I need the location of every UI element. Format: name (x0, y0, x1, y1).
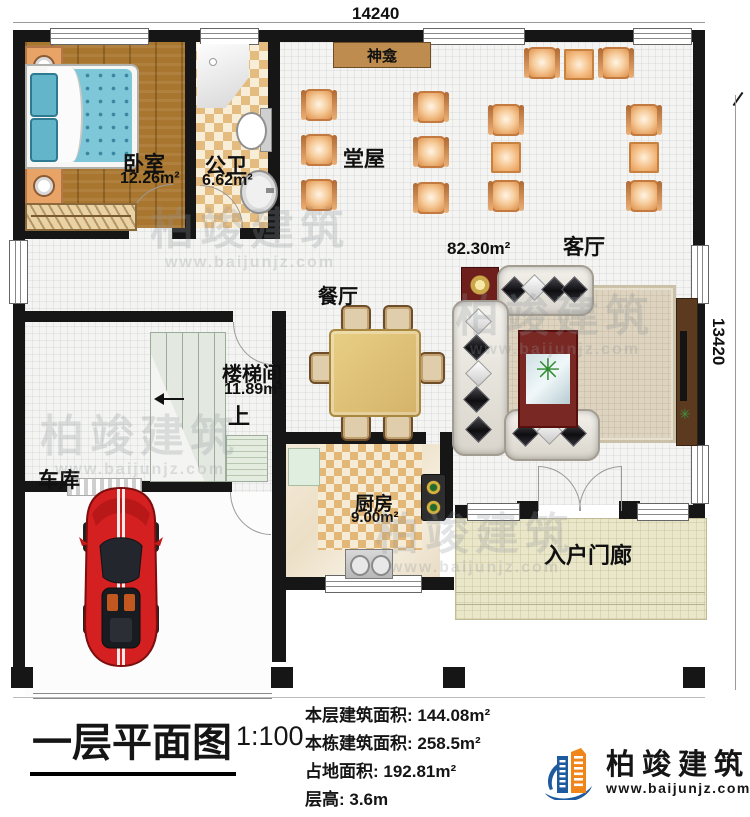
scale-label: 1:100 (236, 721, 304, 752)
wall (13, 311, 233, 322)
cushion (465, 416, 492, 443)
cushion (463, 386, 490, 413)
living-area: 82.30m² (447, 239, 510, 259)
pillar (683, 667, 705, 688)
side-table (461, 267, 499, 303)
window (423, 28, 525, 45)
basin-icon (350, 555, 370, 576)
basin-icon (371, 555, 391, 576)
sofa-top (497, 265, 594, 316)
dimension-line-right (735, 95, 736, 690)
wall (13, 492, 25, 688)
hall-chair (629, 104, 659, 136)
dining-table (329, 329, 421, 417)
arrow-head-icon (148, 393, 164, 405)
coffee-table: ✳ (518, 330, 578, 428)
window (691, 445, 709, 504)
wall (240, 228, 280, 239)
staircase (150, 332, 226, 482)
window (633, 28, 692, 45)
tv-cabinet: ✳ (676, 298, 698, 446)
dimension-right: 13420 (708, 318, 728, 365)
hall-chair (304, 89, 334, 121)
page-title: 一层平面图 (30, 710, 236, 776)
wall (172, 228, 185, 239)
hall-chair (304, 134, 334, 166)
hall-chair (416, 136, 446, 168)
pillar (271, 667, 293, 688)
logo-text-block: 柏竣建筑 www.baijunjz.com (606, 750, 750, 796)
hall-tea-table (491, 142, 521, 173)
cushion (561, 276, 588, 303)
porch-step-line (455, 592, 705, 593)
window (200, 28, 259, 45)
dining-chair (383, 413, 413, 441)
faucet-icon (266, 188, 274, 193)
hall-chair (491, 180, 521, 212)
hall-tea-table (629, 142, 659, 173)
hall-chair (527, 47, 557, 79)
bed (25, 64, 139, 169)
stat-floor-height: 层高: 3.6m (305, 786, 490, 814)
wall (272, 492, 286, 662)
cushion (465, 360, 492, 387)
wall (185, 42, 196, 239)
cushion (463, 334, 490, 361)
garage-door (33, 693, 272, 699)
pillar (11, 667, 33, 688)
hall-chair (416, 182, 446, 214)
stair-direction-arrow (158, 398, 184, 400)
stairwell-area: 11.89m² (224, 381, 283, 399)
stove (421, 474, 446, 521)
stair-landing (226, 435, 268, 482)
window (691, 245, 709, 304)
car (78, 484, 164, 670)
toilet (236, 112, 267, 150)
wall (13, 302, 25, 492)
lamp-icon (33, 175, 55, 197)
dimension-line-top (13, 22, 705, 23)
stat-floor-area: 本层建筑面积: 144.08m² (305, 702, 490, 730)
hall-chair (629, 180, 659, 212)
garage-label: 车库 (38, 464, 80, 494)
cushion (465, 308, 492, 335)
porch-step-line (455, 604, 705, 605)
pillar (517, 501, 538, 519)
pillar (443, 667, 465, 688)
stat-footprint-area: 占地面积: 192.81m² (305, 758, 490, 786)
porch-label: 入户门廊 (544, 538, 632, 570)
stairwell-up-label: 上 (228, 399, 250, 431)
stat-building-area: 本栋建筑面积: 258.5m² (305, 730, 490, 758)
nightstand (25, 166, 63, 206)
kitchen-counter (288, 448, 320, 486)
kitchen-area: 9.00m² (351, 509, 399, 526)
wall (693, 30, 705, 245)
logo-website: www.baijunjz.com (606, 780, 750, 796)
hall-chair (491, 104, 521, 136)
stats-block: 本层建筑面积: 144.08m² 本栋建筑面积: 258.5m² 占地面积: 1… (305, 702, 490, 814)
bathroom-area: 6.62m² (202, 172, 253, 190)
dining-chair (419, 352, 445, 384)
kitchen-sink (345, 549, 393, 579)
plant-icon: ✳ (528, 356, 568, 386)
logo-icon (542, 746, 598, 800)
burner-icon (426, 480, 441, 495)
floor-plan: 14240 13420 (0, 0, 750, 817)
window (50, 28, 149, 45)
window (637, 503, 689, 521)
tv-icon (680, 331, 687, 401)
logo: 柏竣建筑 www.baijunjz.com (542, 746, 750, 800)
wall (13, 30, 25, 240)
hall-chair (304, 179, 334, 211)
hall-tea-table (564, 49, 594, 80)
plant-icon: ✳ (679, 407, 691, 421)
window (467, 503, 520, 521)
logo-name: 柏竣建筑 (606, 750, 750, 780)
shrine-label: 神龛 (367, 45, 397, 66)
pillow (30, 118, 58, 162)
wardrobe-rail (31, 215, 131, 217)
sofa-left (452, 300, 509, 456)
hall-chair (601, 47, 631, 79)
drain-icon (209, 58, 217, 66)
wall (272, 311, 286, 492)
dining-label: 餐厅 (318, 280, 358, 309)
shrine-cabinet: 神龛 (333, 42, 431, 68)
window (9, 240, 28, 304)
dimension-top: 14240 (352, 4, 399, 24)
ground-line (13, 697, 705, 698)
dining-chair (341, 413, 371, 441)
living-label: 客厅 (563, 231, 605, 261)
burner-icon (426, 500, 441, 515)
pillow (30, 73, 58, 117)
hall-chair (416, 91, 446, 123)
wardrobe (25, 203, 137, 231)
bedroom-area: 12.26m² (120, 170, 180, 188)
hall-label: 堂屋 (343, 143, 385, 173)
